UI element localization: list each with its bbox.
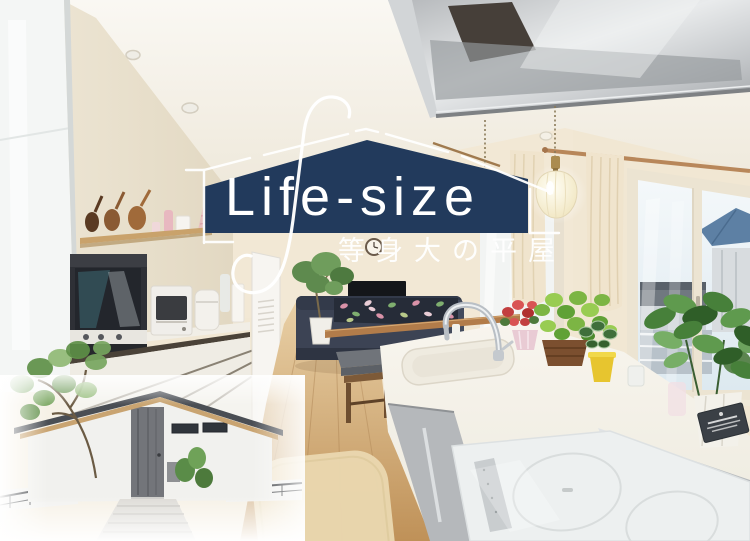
cabinet-handle [424,428,440,522]
island-cabinet-panel [388,404,492,541]
range-hood [388,0,750,118]
large-plant [641,288,750,448]
tall-cabinet [0,0,80,392]
window-left [476,186,564,350]
cutting-board [232,284,244,322]
red-flower-plant [500,300,539,350]
kitchen-island [325,305,750,541]
photo-blend-left [0,375,48,541]
garden-tree [10,341,111,478]
slit-window [172,424,198,433]
photo-blend-right [252,375,305,541]
house-exterior-photo [0,341,305,541]
tv [348,281,406,300]
lower-cabinets [70,337,276,500]
louver-vent [258,300,274,332]
photo-blend-top [0,375,305,405]
wood-bench [336,348,397,423]
curtains [510,150,624,311]
plant-card [697,403,749,443]
throw-blanket [334,298,458,326]
microwave-oven [70,254,147,357]
hanger-pole [433,143,500,166]
neighbor-building [640,282,706,306]
neighbor-roof [700,208,750,246]
left-wall [62,0,233,332]
sofa [296,296,464,360]
slit-window [203,423,227,432]
photo-blend-bottom [0,496,305,541]
pocket-door [252,252,280,438]
cooktop-trim [598,428,750,494]
kitchen-mat [250,447,399,541]
logo [0,0,750,541]
kitchen-faucet [446,305,512,361]
bottle [220,274,230,312]
induction-cooktop [452,431,750,541]
entry-shrub [175,447,213,488]
pink-vase [668,382,686,416]
soap-bottle [452,324,460,340]
wall-shelf [80,190,216,248]
curtain-rod [542,147,750,171]
logo-script-f [0,0,750,541]
kitchen-photo [0,0,750,541]
window-lock [696,296,700,308]
recessed-light [126,51,552,141]
window-right [627,168,750,406]
window-sill [627,396,750,406]
wood-floor [240,302,465,541]
hero-image: Life-size 等身大の平屋 [0,0,750,541]
island-counter [380,321,750,541]
pendant-light [485,106,587,224]
right-wall [0,0,750,541]
counter-trim [325,314,520,338]
shelf-decor [85,190,216,236]
corner-bracket-right [530,189,559,233]
porch-railing [0,479,302,511]
entrance-path [96,499,196,541]
mailbox [167,462,180,482]
yellow-pot-plant [579,321,617,382]
front-door [131,407,164,502]
wrapped-pot [694,392,742,448]
brand-tagline: 等身大の平屋 [338,236,566,266]
kitchen-sink [400,337,516,386]
glass-jar [628,366,644,386]
balcony [640,330,712,374]
house-walls [28,397,272,502]
rice-cooker [195,290,219,330]
brand-wordmark: Life-size [225,171,480,223]
pothos-basket [534,291,617,366]
counter-plants [500,288,750,448]
toaster-oven [151,286,192,335]
appliance-counter [70,254,276,500]
house-roof [14,391,283,440]
